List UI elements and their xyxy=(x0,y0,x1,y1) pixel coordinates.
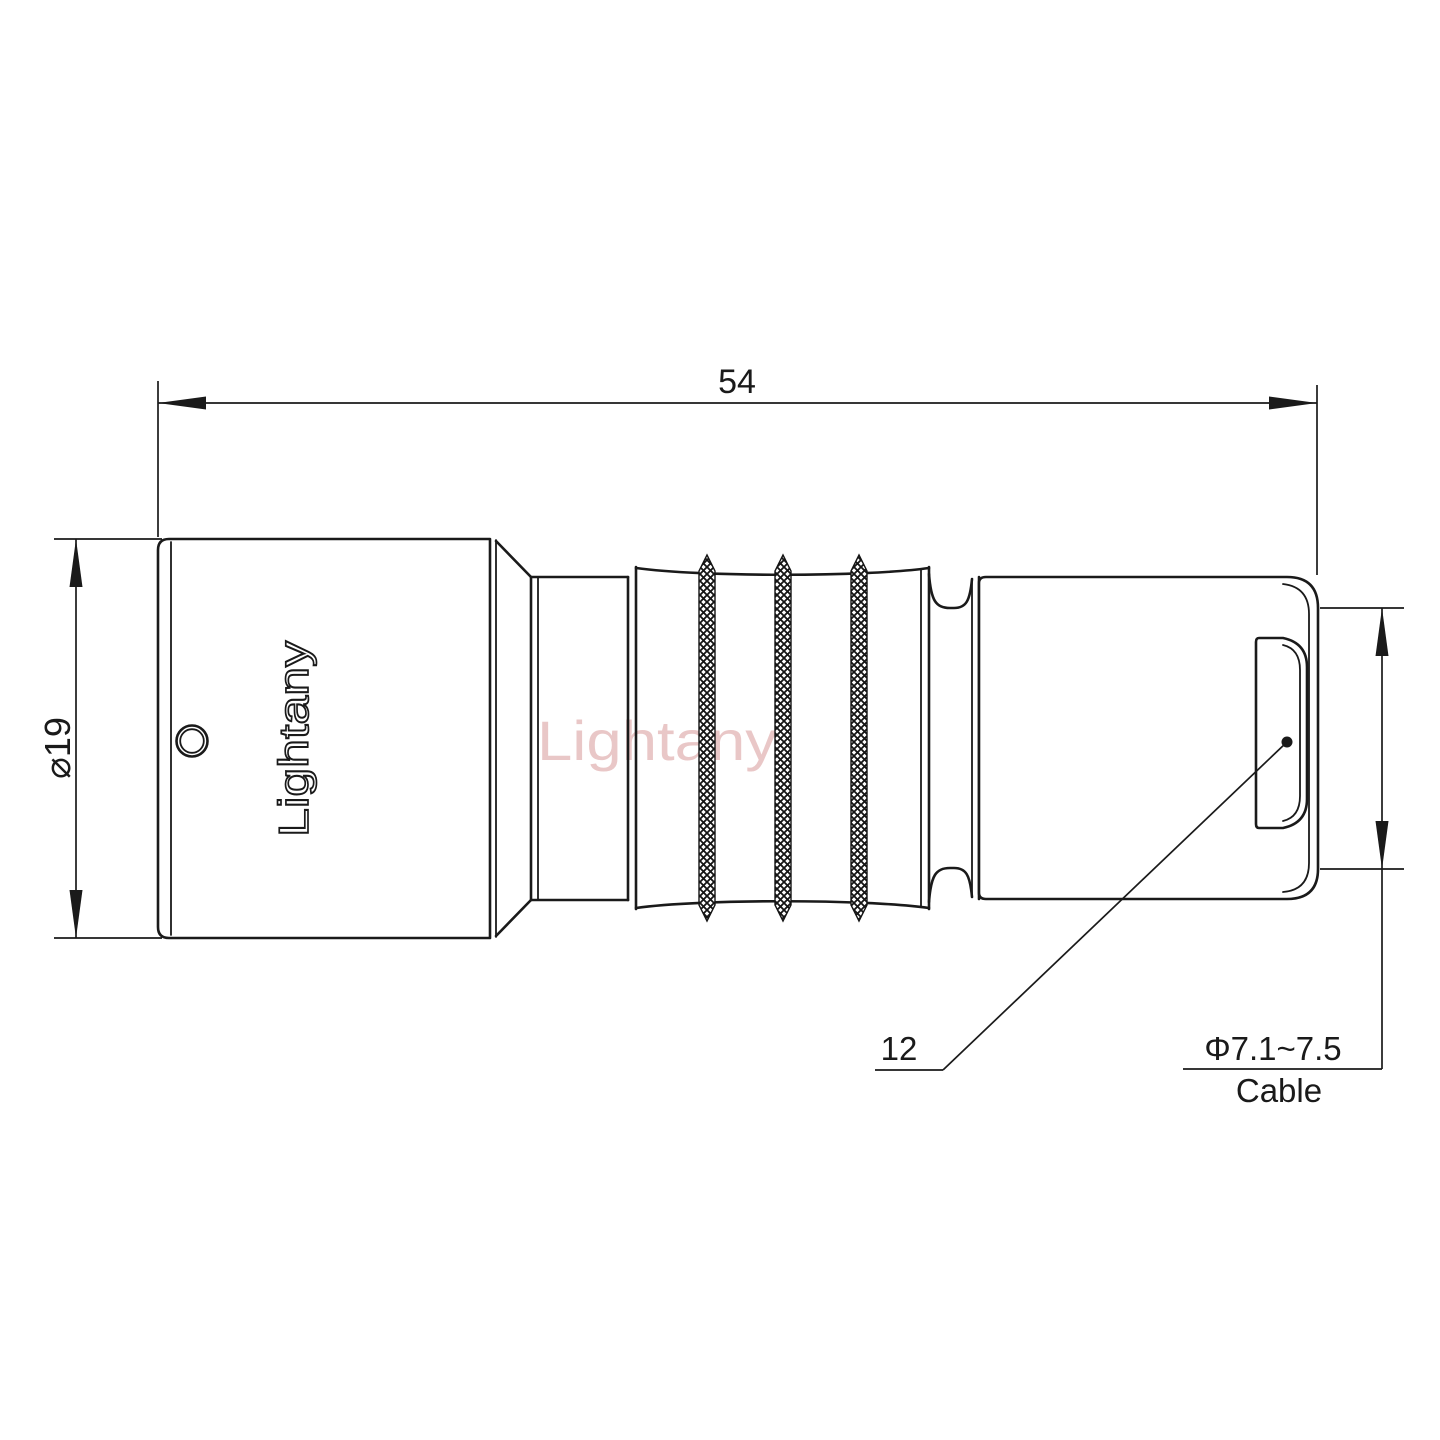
arrowhead-down-icon xyxy=(70,890,83,938)
groove-bottom xyxy=(929,868,972,902)
neck-groove xyxy=(929,574,979,902)
dimension-diameter-19-label: ⌀19 xyxy=(37,717,78,779)
taper-cone xyxy=(496,541,538,936)
cone-edge-bottom xyxy=(496,900,531,936)
front-body: Lightany xyxy=(158,539,496,938)
connector-technical-drawing: Lightany 54 ⌀19 Lightany xyxy=(0,0,1440,1440)
engraved-brand-text: Lightany xyxy=(270,641,317,837)
arrowhead-right-icon xyxy=(1269,397,1317,410)
knurl-band xyxy=(775,555,791,921)
knurl-band xyxy=(851,555,867,921)
knurl-band xyxy=(699,555,715,921)
label-12: 12 xyxy=(881,1030,918,1067)
groove-top xyxy=(929,574,972,608)
dimension-54-label: 54 xyxy=(718,363,756,401)
arrowhead-up-icon xyxy=(70,539,83,587)
arrowhead-up-icon xyxy=(1376,608,1389,656)
arrowhead-left-icon xyxy=(158,397,206,410)
dimension-front-diameter: ⌀19 xyxy=(37,539,162,938)
drawing-canvas: Lightany 54 ⌀19 Lightany xyxy=(0,0,1440,1440)
rear-body xyxy=(979,577,1318,899)
label-cable-caption: Cable xyxy=(1236,1072,1322,1109)
watermark-text: Lightany xyxy=(537,709,777,772)
label-cable-diameter: Φ7.1~7.5 xyxy=(1204,1030,1341,1067)
arrowhead-down-icon xyxy=(1376,821,1389,869)
cone-edge-top xyxy=(496,541,531,577)
